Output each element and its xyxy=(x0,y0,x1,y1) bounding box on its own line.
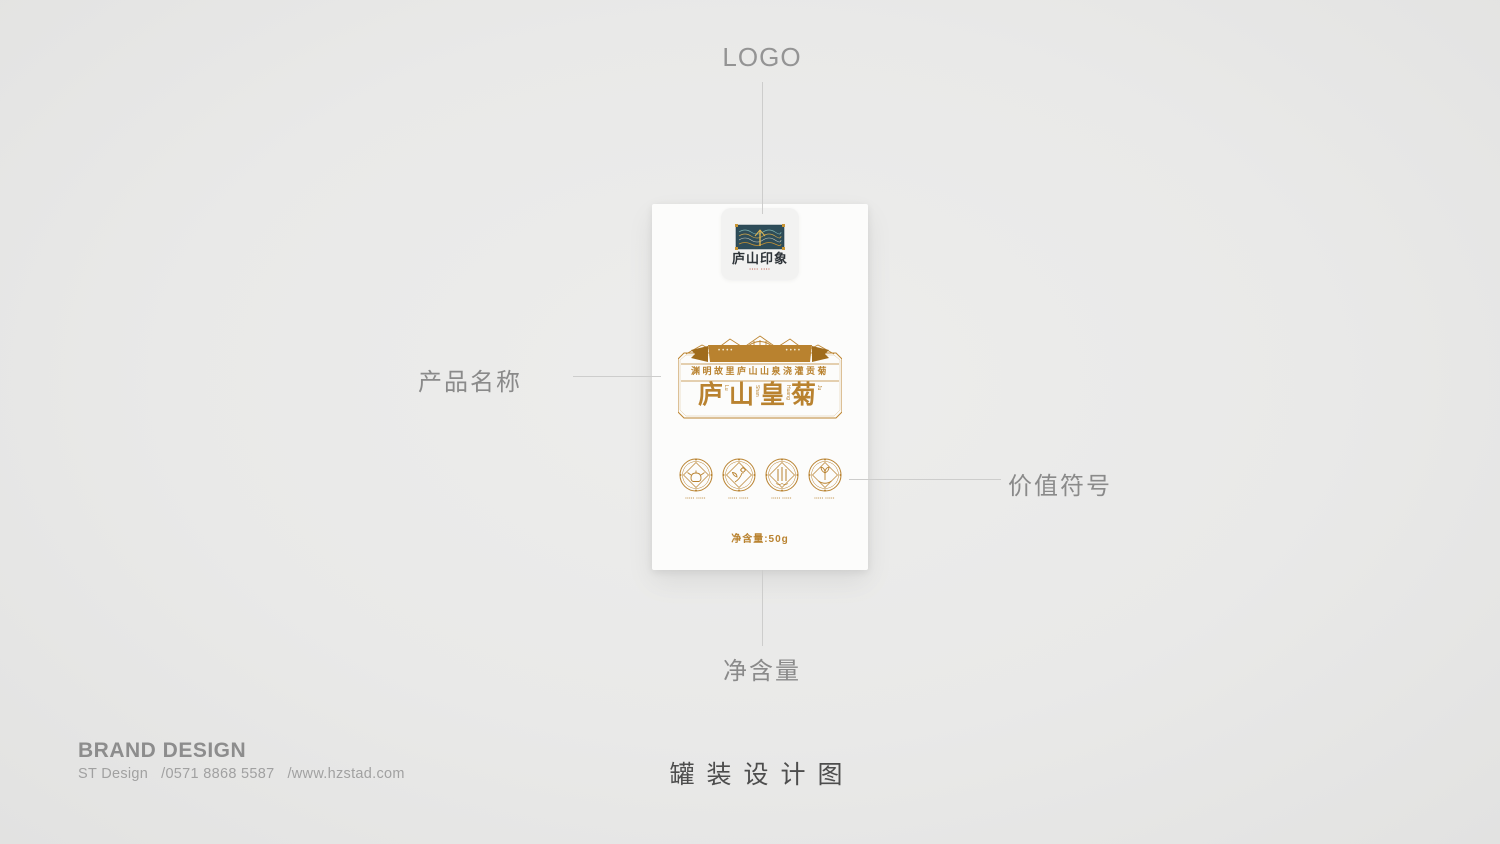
value-badge: ••••• ••••• xyxy=(806,457,844,500)
value-badge: ••••• ••••• xyxy=(720,457,758,500)
leader-line-value-symbols xyxy=(849,479,1001,480)
footer-caption: 罐装设计图 xyxy=(602,755,922,791)
value-badge: ••••• ••••• xyxy=(677,457,715,500)
ribbon-microtext: •••• •••• xyxy=(712,348,808,354)
product-title: 庐 Lu 山 Shan 皇 Huang 菊 Ju xyxy=(678,382,842,411)
footer-contact-info: ST Design /0571 8868 5587 /www.hzstad.co… xyxy=(78,766,405,782)
annotation-value-symbols-label: 价值符号 xyxy=(1008,466,1112,501)
value-badge-caption: ••••• ••••• xyxy=(685,496,706,500)
product-name-label-art: •••• •••• 渊明故里庐山山泉浇灌贡菊 庐 Lu 山 Shan 皇 Hua… xyxy=(678,331,842,421)
annotation-product-name-label: 产品名称 xyxy=(418,362,522,397)
ribbon-text-right: •••• xyxy=(786,348,802,354)
leader-line-product-name xyxy=(573,376,661,377)
title-char: 山 xyxy=(729,382,754,411)
value-symbols-row: ••••• ••••• ••••• ••••• xyxy=(652,457,868,500)
value-badge: ••••• ••••• xyxy=(763,457,801,500)
waterfall-icon xyxy=(764,457,800,493)
title-char: 菊 xyxy=(791,382,816,411)
ribbon-text-left: •••• xyxy=(718,348,734,354)
title-pinyin: Lu xyxy=(723,385,728,391)
seal-microtext: •••• •••• xyxy=(749,266,770,272)
title-pinyin: Shan xyxy=(754,385,759,397)
net-weight-value: 净含量:50g xyxy=(652,530,868,545)
value-badge-caption: ••••• ••••• xyxy=(728,496,749,500)
can-package-mockup: 庐山印象 •••• •••• xyxy=(652,204,868,570)
value-badge-caption: ••••• ••••• xyxy=(814,496,835,500)
logo-card: 庐山印象 •••• •••• xyxy=(721,208,799,280)
leader-line-logo xyxy=(762,82,763,214)
teapot-icon xyxy=(678,457,714,493)
label-subtitle-strip: 渊明故里庐山山泉浇灌贡菊 xyxy=(682,366,838,378)
annotation-logo-label: LOGO xyxy=(662,42,862,73)
design-presentation-canvas: LOGO 产品名称 价值符号 净含量 庐山印象 •••• •••• xyxy=(0,0,1500,844)
title-char: 皇 xyxy=(760,382,785,411)
title-pinyin: Ju xyxy=(816,385,821,390)
annotation-net-weight-label: 净含量 xyxy=(662,651,862,686)
lushan-mountain-plaque-icon xyxy=(735,224,785,250)
title-pinyin: Huang xyxy=(785,385,790,400)
value-badge-caption: ••••• ••••• xyxy=(771,496,792,500)
brand-calligraphy: 庐山印象 xyxy=(732,252,788,266)
title-char: 庐 xyxy=(698,382,723,411)
leader-line-net-weight xyxy=(762,570,763,646)
flower-sprig-icon xyxy=(721,457,757,493)
hand-sprout-icon xyxy=(807,457,843,493)
footer-brand-design-title: BRAND DESIGN xyxy=(78,739,246,763)
